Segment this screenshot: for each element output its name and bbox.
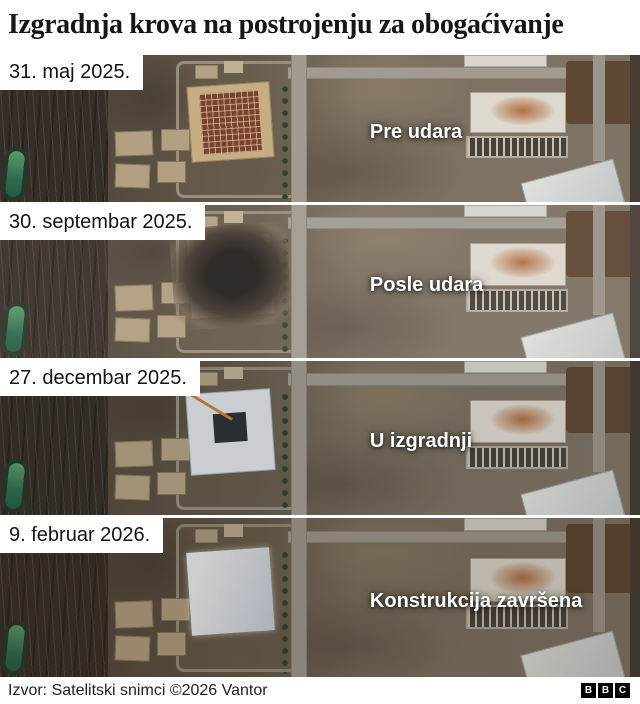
vertical-road	[291, 361, 308, 515]
date-label: 31. maj 2025.	[0, 55, 143, 90]
tree-line	[280, 84, 290, 199]
right-edge-terrain	[630, 361, 640, 515]
date-label: 9. februar 2026.	[0, 518, 163, 553]
tree-line	[280, 550, 290, 674]
storage-building	[115, 474, 151, 500]
auxiliary-building	[224, 61, 243, 73]
vertical-road	[291, 55, 308, 202]
right-edge-terrain	[630, 55, 640, 202]
auxiliary-building	[224, 524, 243, 537]
vertical-road	[291, 205, 308, 358]
storage-building	[115, 284, 154, 311]
auxiliary-building	[195, 65, 217, 78]
panel-before-strike: 31. maj 2025. Pre udara	[0, 55, 640, 202]
source-credit: Izvor: Satelitski snimci ©2026 Vantor	[8, 682, 268, 700]
storage-building	[115, 635, 151, 662]
bbc-logo: B B C	[581, 683, 630, 698]
annotation-label: Posle udara	[370, 274, 483, 297]
loading-docks	[466, 446, 568, 469]
storage-building	[161, 438, 190, 461]
enrichment-hall	[186, 233, 275, 318]
auxiliary-building	[224, 367, 243, 379]
stained-roof-building	[470, 400, 566, 443]
bbc-logo-block: B	[598, 683, 613, 698]
storage-building	[161, 129, 190, 151]
right-edge-terrain	[630, 518, 640, 677]
warehouse-roof	[464, 518, 547, 531]
panel-construction-finished: 9. februar 2026. Konstrukcija završena	[0, 518, 640, 677]
enrichment-hall	[186, 82, 274, 164]
white-building	[520, 470, 625, 515]
roof-grid-before	[199, 90, 262, 155]
white-building	[520, 630, 626, 677]
warehouse-roof	[464, 55, 547, 67]
right-road	[593, 361, 606, 472]
storage-building	[161, 598, 190, 622]
enrichment-hall	[186, 389, 275, 475]
white-building	[520, 158, 625, 202]
annotation-label: U izgradnji	[370, 430, 472, 453]
storage-building	[115, 440, 154, 467]
storage-building	[115, 600, 154, 628]
storage-building	[115, 318, 151, 344]
warehouse-roof	[464, 361, 547, 373]
auxiliary-building	[195, 529, 217, 543]
news-graphic: Izgradnja krova na postrojenju za obogać…	[0, 0, 640, 704]
bbc-logo-block: B	[581, 683, 596, 698]
date-label: 30. septembar 2025.	[0, 205, 205, 240]
page-title: Izgradnja krova na postrojenju za obogać…	[8, 9, 630, 41]
storage-building	[115, 131, 154, 157]
date-label: 27. decembar 2025.	[0, 361, 200, 396]
storage-building	[157, 472, 186, 495]
bbc-logo-block: C	[615, 683, 630, 698]
right-edge-terrain	[630, 205, 640, 358]
stained-roof-building	[470, 243, 566, 286]
right-road	[593, 205, 606, 315]
header: Izgradnja krova na postrojenju za obogać…	[0, 0, 640, 55]
tree-line	[280, 392, 290, 512]
warehouse-roof	[464, 205, 547, 217]
vertical-road	[291, 518, 308, 677]
storage-building	[157, 632, 186, 656]
panel-after-strike: 30. septembar 2025. Posle udara	[0, 205, 640, 358]
stained-roof-building	[470, 92, 566, 133]
right-road	[593, 55, 606, 161]
auxiliary-building	[224, 211, 243, 223]
white-building	[520, 313, 625, 358]
right-road	[593, 518, 606, 632]
footer: Izvor: Satelitski snimci ©2026 Vantor B …	[0, 677, 640, 704]
annotation-label: Konstrukcija završena	[370, 590, 582, 613]
loading-docks	[466, 136, 568, 158]
annotation-label: Pre udara	[370, 121, 462, 144]
panel-under-construction: 27. decembar 2025. U izgradnji	[0, 361, 640, 515]
storage-building	[115, 163, 151, 188]
enrichment-hall	[186, 547, 275, 635]
storage-building	[157, 161, 186, 183]
